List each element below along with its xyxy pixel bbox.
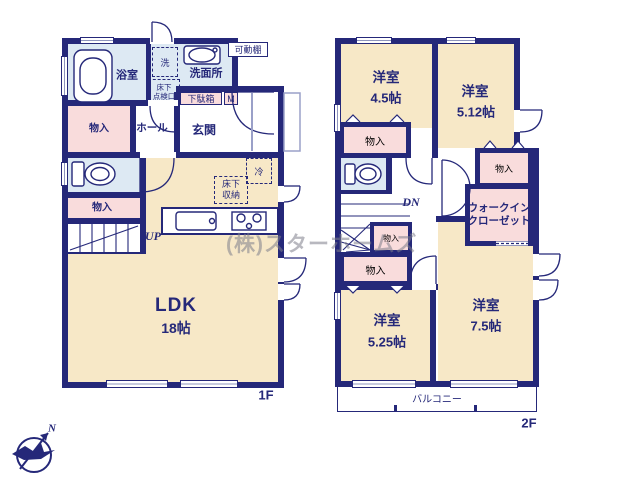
casement-1f-2-swing [284, 258, 306, 282]
room-2f-b-size: 5.12帖 [457, 106, 495, 121]
floor2-label: 2F [521, 417, 536, 432]
toilet-1f-bowl-icon [85, 163, 115, 185]
room-2f-a-size: 4.5帖 [370, 92, 401, 107]
door-2f-a-swing [406, 158, 432, 184]
casement-1f-3-swing [284, 284, 300, 300]
entrance-label: 玄関 [192, 124, 216, 138]
room-2f-d-size: 7.5帖 [470, 320, 501, 335]
storage-lower-1f-label: 物入 [92, 202, 112, 214]
hall-label: ホール [136, 122, 168, 134]
compass-north-label: N [48, 423, 56, 436]
toilet-2f-tank-icon [345, 164, 355, 184]
door-2f-c-swing [410, 256, 436, 284]
room-2f-b-name: 洋室 [462, 84, 489, 100]
balcony-label: バルコニー [412, 394, 462, 406]
toilet-2f-bowl-icon [355, 164, 381, 184]
back-door-swing [152, 22, 172, 42]
casement-1f-1-swing [284, 186, 300, 202]
bathroom-label: 浴室 [116, 70, 138, 83]
door-2f-d-swing [442, 160, 470, 216]
storage-upper-1f-label: 物入 [89, 123, 109, 135]
porch-outline [284, 93, 300, 151]
room-2f-c-size: 5.25帖 [368, 336, 406, 351]
room-2f-c-name: 洋室 [374, 313, 401, 329]
casement-2f-b-swing [520, 110, 542, 132]
floor1-label: 1F [258, 389, 273, 404]
stairs-1f [70, 224, 138, 252]
toilet-1f-tank-icon [72, 162, 84, 186]
ldk-name-label: LDK [155, 295, 197, 317]
ldk-size-label: 18帖 [161, 320, 191, 336]
stairs-up-label: UP [145, 230, 161, 244]
washroom-label: 洗面所 [190, 68, 223, 81]
sink-faucet-icon [213, 48, 217, 52]
casement-2f-d2-swing [539, 280, 558, 300]
hall-ldk-door-swing [140, 158, 174, 192]
floor-plan-canvas: 可動棚 下駄箱 M 洗 床下点検口 冷 床下収納 [0, 0, 640, 480]
casement-2f-d1-swing [539, 254, 560, 276]
watermark-text: (株)スターホームズ [226, 228, 417, 258]
room-2f-d-name: 洋室 [473, 298, 500, 314]
stairs-dn-label: DN [402, 196, 419, 210]
room-2f-a-name: 洋室 [373, 70, 400, 86]
compass-icon [12, 433, 55, 472]
kitchen-faucet-icon [210, 219, 215, 224]
